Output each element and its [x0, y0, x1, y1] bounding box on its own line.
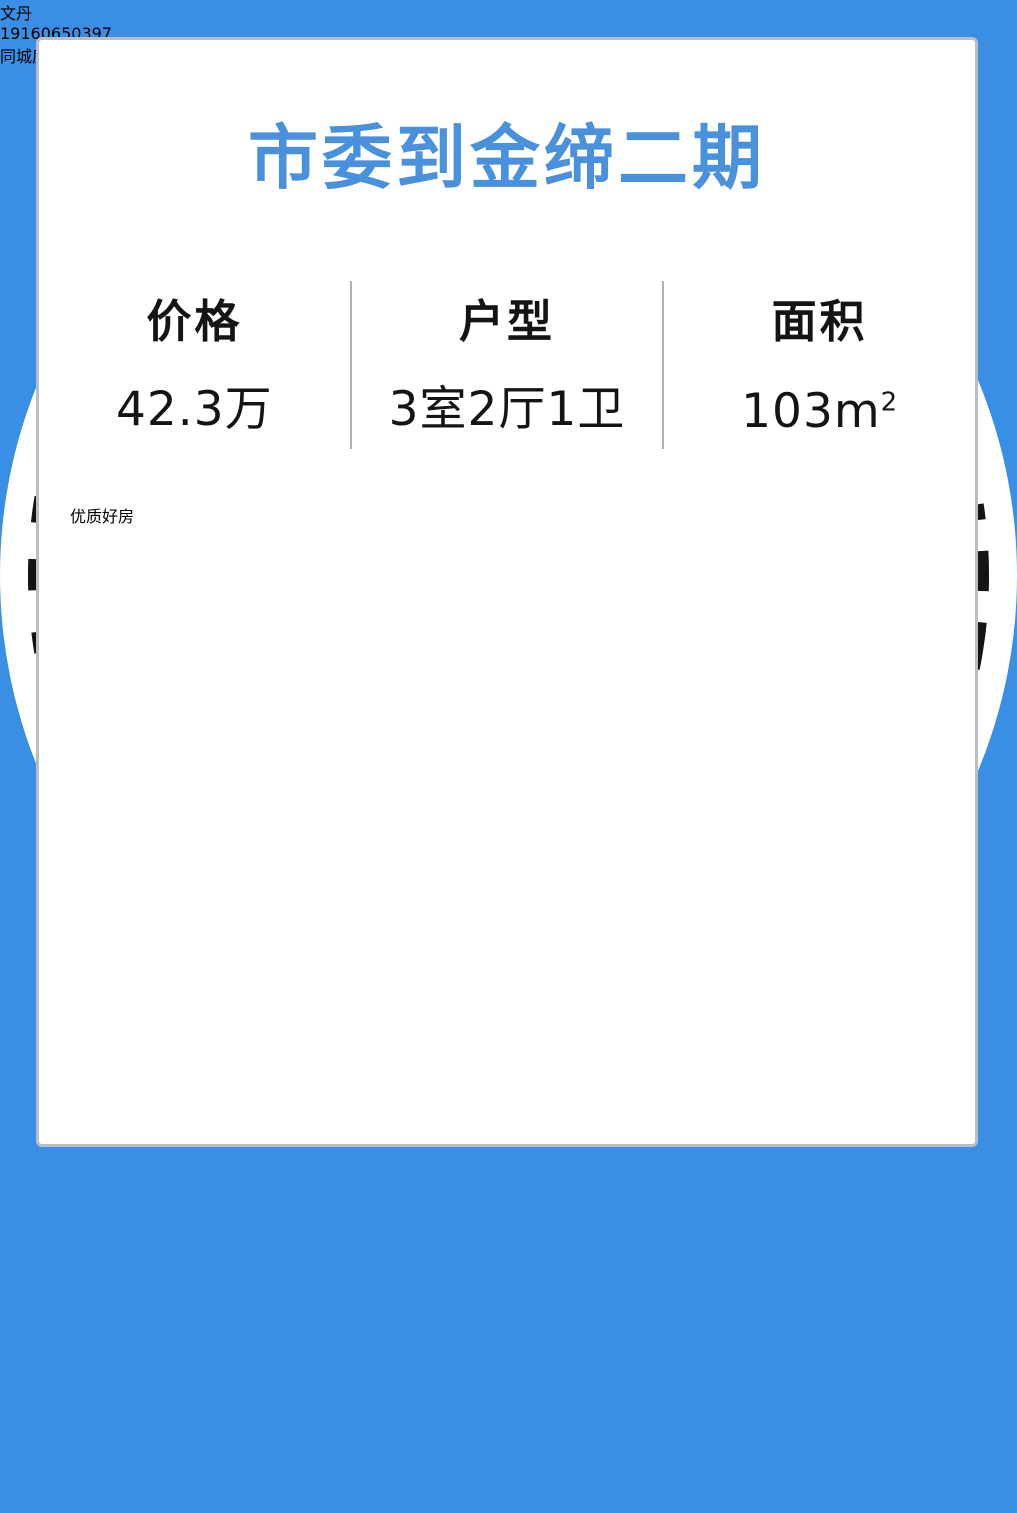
listing-title: 市委到金缔二期 [39, 102, 975, 203]
listing-card: 市委到金缔二期 价格 42.3万 户型 3室2厅1卫 面积 103m2 [36, 37, 978, 1147]
property-poster: 市委到金缔二期 价格 42.3万 户型 3室2厅1卫 面积 103m2 [0, 0, 1017, 1513]
stat-price-value: 42.3万 [116, 370, 273, 439]
stat-area-label: 面积 [772, 285, 868, 350]
stat-layout: 户型 3室2厅1卫 [350, 281, 663, 449]
area-superscript: 2 [881, 387, 899, 417]
stats-row: 价格 42.3万 户型 3室2厅1卫 面积 103m2 [39, 281, 975, 449]
stat-layout-label: 户型 [459, 285, 555, 350]
stat-area-value: 103m2 [741, 384, 898, 439]
photo-grid: 优质好房 [39, 503, 975, 1084]
quality-badge: 优质好房 [70, 503, 632, 527]
photo-column-right [644, 503, 944, 1084]
photo-bedroom [644, 503, 944, 787]
agent-name: 文丹 [0, 0, 1017, 24]
stat-layout-value: 3室2厅1卫 [389, 370, 626, 439]
stat-price-label: 价格 [146, 285, 242, 350]
stat-price: 价格 42.3万 [39, 281, 350, 449]
photo-living-room: 优质好房 [70, 503, 632, 1084]
stat-area: 面积 103m2 [662, 281, 975, 449]
photo-study-room [644, 799, 944, 1082]
